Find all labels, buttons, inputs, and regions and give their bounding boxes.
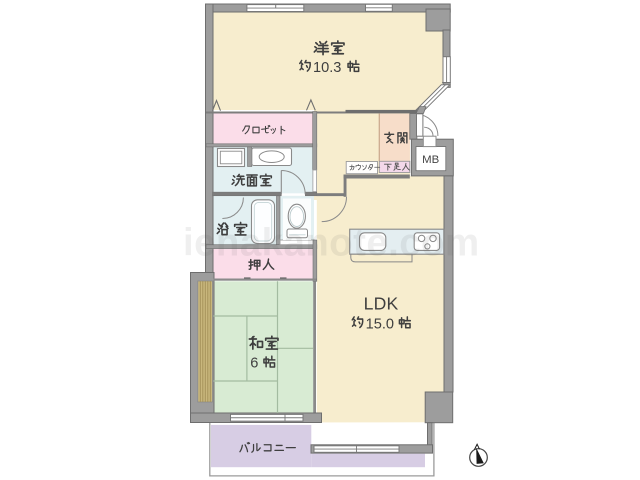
svg-text:MB: MB [422, 154, 439, 166]
svg-text:15.0: 15.0 [366, 316, 394, 332]
svg-text:10.3: 10.3 [313, 60, 341, 76]
svg-text:6: 6 [250, 355, 258, 371]
svg-text:LDK: LDK [364, 294, 399, 314]
svg-text:ienakanote.com: ienakanote.com [183, 222, 480, 265]
